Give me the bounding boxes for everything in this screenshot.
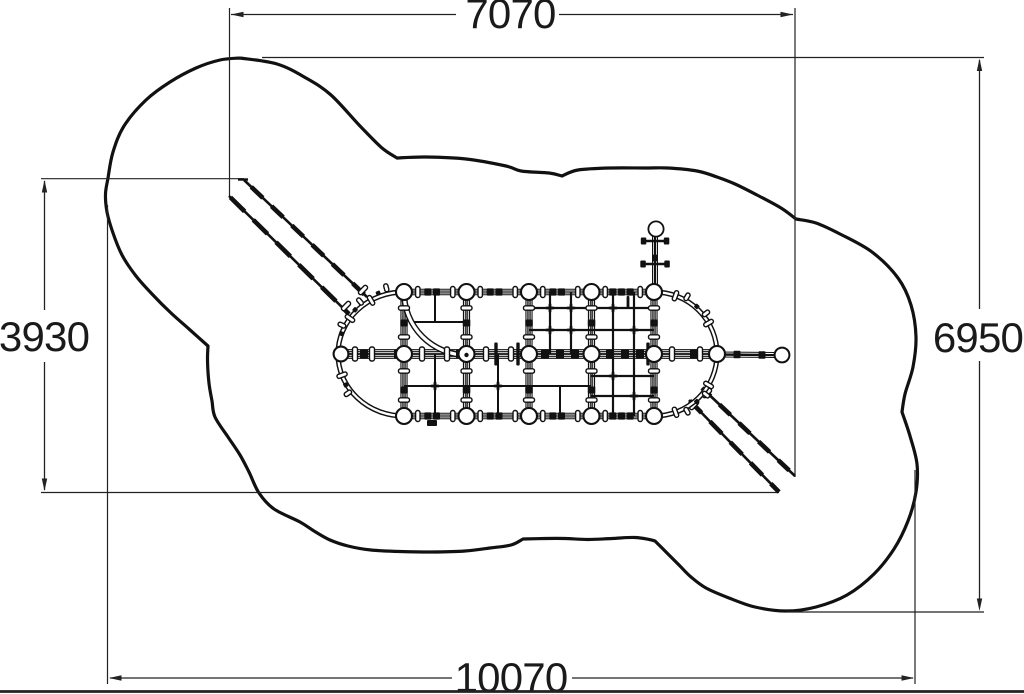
svg-text:6950: 6950 xyxy=(933,314,1023,361)
svg-text:7070: 7070 xyxy=(465,0,555,37)
svg-text:10070: 10070 xyxy=(455,654,568,694)
svg-text:3930: 3930 xyxy=(0,313,89,360)
